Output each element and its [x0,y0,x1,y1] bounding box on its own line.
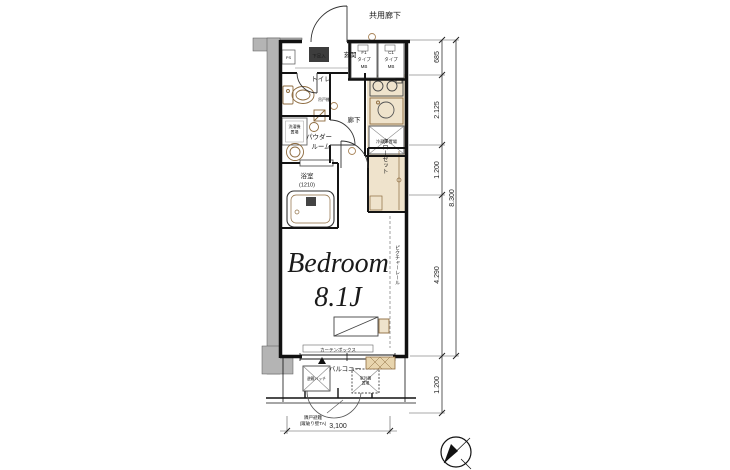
dim-right-685: 685 [434,51,441,63]
evac-leader-line [327,400,343,413]
washer-label-2: 置場 [291,129,299,135]
balcony-label: バルコニー [329,365,361,373]
outdoor-unit-label-2: 置場 [362,381,370,386]
evacuation-note-1: 隣戸避難 [304,414,322,421]
evacuation-arc [307,391,361,418]
mb2-line3: MB [388,64,395,69]
dim-right-total-8300: 8.300 [449,189,456,207]
bedroom-name-label: Bedroom [287,248,389,279]
washer-label-1: 洗濯機 [289,123,301,129]
escape-hatch-label: 避難ハッチ [307,376,326,381]
bedroom-size-label: 8.1J [314,282,363,313]
floorplan-drawing: 共用廊下 玄関 下足入 PS トイレ 吊戸棚 廊下 パウダー ルーム 洗濯機 置… [0,0,730,470]
toilet-label: トイレ [311,76,331,83]
powder-room-label-2: ルーム [311,143,331,151]
dim-right-4290: 4.290 [434,266,441,284]
mb1-line3: MB [361,64,368,69]
closet-label: クローゼット [381,138,388,174]
bath-label: 浴室 [301,171,315,180]
entrance-label: 玄関 [344,50,357,59]
evacuation-note-2: (蹴破り壁TA) [300,420,327,427]
entrance-door-swing [311,6,347,42]
dim-right-1200: 1.200 [434,161,441,179]
water-heater-icon [366,357,395,369]
closet-fill [369,149,405,211]
curtain-box-label: カーテンボックス [320,347,356,354]
outdoor-unit-label-1: 室外機 [360,376,372,381]
dim-right-balcony-1200: 1.200 [434,376,441,394]
powder-room-label-1: パウダー [306,132,332,141]
picture-rail-label: ピクチャーレール [394,245,400,285]
bath-size-label: (1210) [299,183,315,189]
north-arrow-icon [441,437,471,469]
cabinet-label: 吊戸棚 [318,96,330,102]
dim-bottom-3100: 3,100 [329,423,347,430]
mb1-line1: F1 [361,50,367,55]
mb1-line2: タイプ [357,56,371,63]
hallway-label: 廊下 [348,115,362,124]
mb2-line2: タイプ [384,56,398,63]
ps-label: PS [286,55,292,60]
floorplan-page: 共用廊下 玄関 下足入 PS トイレ 吊戸棚 廊下 パウダー ルーム 洗濯機 置… [0,0,730,470]
dim-right-2125: 2.125 [434,101,441,119]
entry-triangle-marker [318,357,326,364]
mb2-line1: C1 [388,50,394,55]
desk-icon [334,317,389,336]
corridor-label: 共用廊下 [369,10,401,20]
